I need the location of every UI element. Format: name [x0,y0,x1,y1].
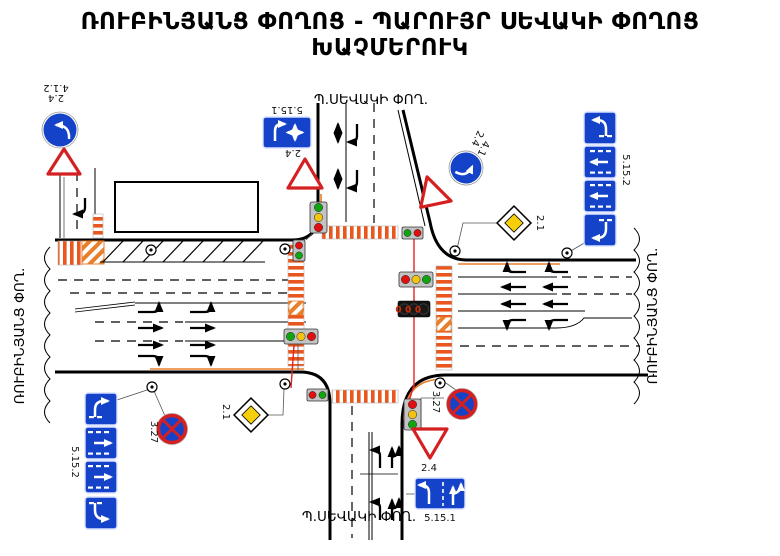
lane-sign-icon [584,146,616,178]
sign-code-label: 5.15.1 [271,104,303,115]
sign-stack-southwest: 5.15.2 [69,393,117,529]
lane-sign-icon [85,497,117,529]
crosswalk-south [332,390,398,403]
lane-arrows-north-approach [338,124,357,188]
lane-sign-icon [584,214,616,246]
no-stopping-sign-icon [157,414,188,445]
sign-code-label: 2.1 [534,215,545,231]
sign-code-label: 5.15.2 [620,154,631,186]
countdown-digits: 000 [395,306,424,316]
sign-code-label: 3.27 [148,421,159,443]
sign-code-label: 2.4 [48,92,64,103]
angled-parking-bays [100,241,265,262]
pole-marker [280,379,290,389]
pole-marker [562,248,572,258]
sign-code-label: 2.1 [220,404,231,420]
crosswalk-driveway [93,214,103,238]
lane-direction-sign-icon [263,117,311,148]
lane-sign-icon [584,112,616,144]
pole-marker [147,382,157,392]
traffic-light-east-approach [399,272,433,287]
sign-code-label: 4.1.2 [43,82,68,93]
traffic-light-south-approach [404,399,421,430]
street-labels: ՌՈՒԲԻՆՅԱՆՑ ՓՈՂ. ՌՈՒԲԻՆՅԱՆՑ ՓՈՂ. Պ.ՍԵՎԱԿԻ… [12,92,661,525]
pole-marker [146,245,156,255]
sign-code-label: 2.4 [421,463,437,474]
priority-road-sign-icon [497,206,531,240]
pole-marker [280,244,290,254]
priority-road-sign-icon [234,398,268,432]
sign-code-label: 5.15.2 [69,446,80,478]
street-label-east: ՌՈՒԲԻՆՅԱՆՑ ՓՈՂ. [645,248,661,385]
traffic-light-north-approach [310,202,327,233]
sign-group-southwest: 3.27 2.1 [148,398,268,444]
refuge-island-east [437,317,451,331]
sign-stack-east: 5.15.2 [584,112,631,246]
no-stopping-sign-icon [447,389,478,420]
driveway-turn-arrow [74,198,85,214]
crosswalk-north [322,226,398,239]
road-edges [55,103,648,540]
intersection-scheme-page: ՌՈՒԲԻՆՅԱՆՑ ՓՈՂՈՑ - ՊԱՐՈՒՅՐ ՍԵՎԱԿԻ ՓՈՂՈՑ … [0,0,780,556]
pedestrian-signal-northeast [402,227,423,239]
signal-countdown-display: 000 [395,301,430,317]
street-label-north: Պ.ՍԵՎԱԿԻ ՓՈՂ. [314,92,428,108]
sign-group-north: 5.15.1 2.4 [263,104,322,188]
crosswalk-far-west [58,241,82,265]
lane-arrows-east-approach [502,263,568,329]
street-label-west: ՌՈՒԲԻՆՅԱՆՑ ՓՈՂ. [12,268,28,405]
sign-code-label: 2.4 [285,147,301,158]
lane-sign-icon [85,461,117,493]
sign-code-label: 3.27 [430,391,441,413]
pole-marker [435,378,445,388]
signal-cables [291,234,414,401]
intersection-diagram: ՌՈՒԲԻՆՅԱՆՑ ՓՈՂ. ՌՈՒԲԻՆՅԱՆՑ ՓՈՂ. Պ.ՍԵՎԱԿԻ… [0,0,780,556]
lane-sign-icon [584,180,616,212]
pedestrian-signal-northwest [293,240,305,261]
brace-east [634,228,640,404]
sign-group-northwest: 4.1.2 2.4 [42,82,80,174]
refuge-island-west [289,301,303,315]
lane-sign-icon [85,427,117,459]
orange-hatch-island-west-end [82,241,104,264]
traffic-light-west-approach [284,329,318,344]
lane-arrows-west-approach [138,303,214,365]
building-footprint [115,182,258,232]
street-label-south: Պ.ՍԵՎԱԿԻ ՓՈՂ. [302,509,416,525]
lane-direction-sign-icon [415,478,465,509]
mandatory-direction-sign-icon [42,112,78,148]
sign-group-south: 3.27 2.4 5.15.1 [413,389,478,525]
pedestrian-crossings [58,214,452,403]
pedestrian-signal-southwest [307,389,328,401]
pole-marker [450,246,460,256]
yield-sign-icon [48,149,80,174]
sign-code-label: 5.15.1 [424,513,456,524]
lane-sign-icon [85,393,117,425]
yield-sign-icon [413,429,447,458]
brace-west [45,247,51,423]
